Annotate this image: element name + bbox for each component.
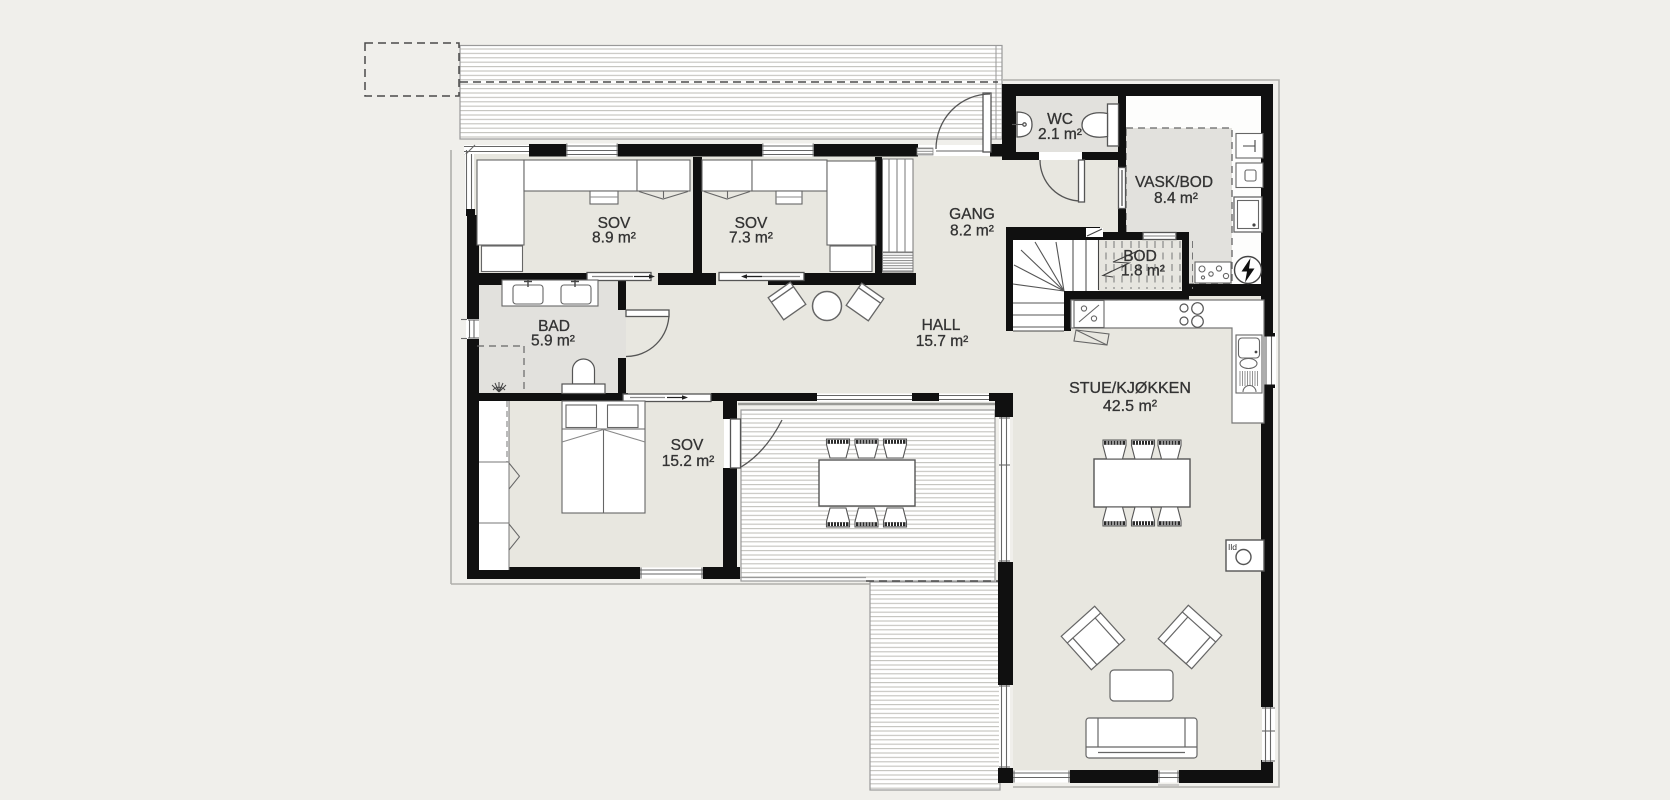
svg-text:SOV: SOV	[671, 437, 704, 454]
svg-text:2.1 m²: 2.1 m²	[1038, 126, 1082, 143]
svg-text:7.3 m²: 7.3 m²	[729, 230, 773, 247]
svg-text:1.8 m²: 1.8 m²	[1121, 263, 1165, 280]
svg-text:8.9 m²: 8.9 m²	[592, 230, 636, 247]
svg-text:HALL: HALL	[922, 317, 961, 334]
svg-text:GANG: GANG	[949, 206, 995, 223]
svg-text:15.7 m²: 15.7 m²	[916, 333, 969, 350]
svg-text:8.4 m²: 8.4 m²	[1154, 190, 1198, 207]
svg-text:5.9 m²: 5.9 m²	[531, 333, 575, 350]
svg-text:STUE/KJØKKEN: STUE/KJØKKEN	[1069, 380, 1191, 397]
svg-text:VASK/BOD: VASK/BOD	[1135, 174, 1213, 191]
svg-text:8.2 m²: 8.2 m²	[950, 223, 994, 240]
svg-text:Ild: Ild	[1228, 542, 1237, 552]
svg-text:42.5 m²: 42.5 m²	[1103, 398, 1158, 415]
svg-text:15.2 m²: 15.2 m²	[662, 453, 715, 470]
